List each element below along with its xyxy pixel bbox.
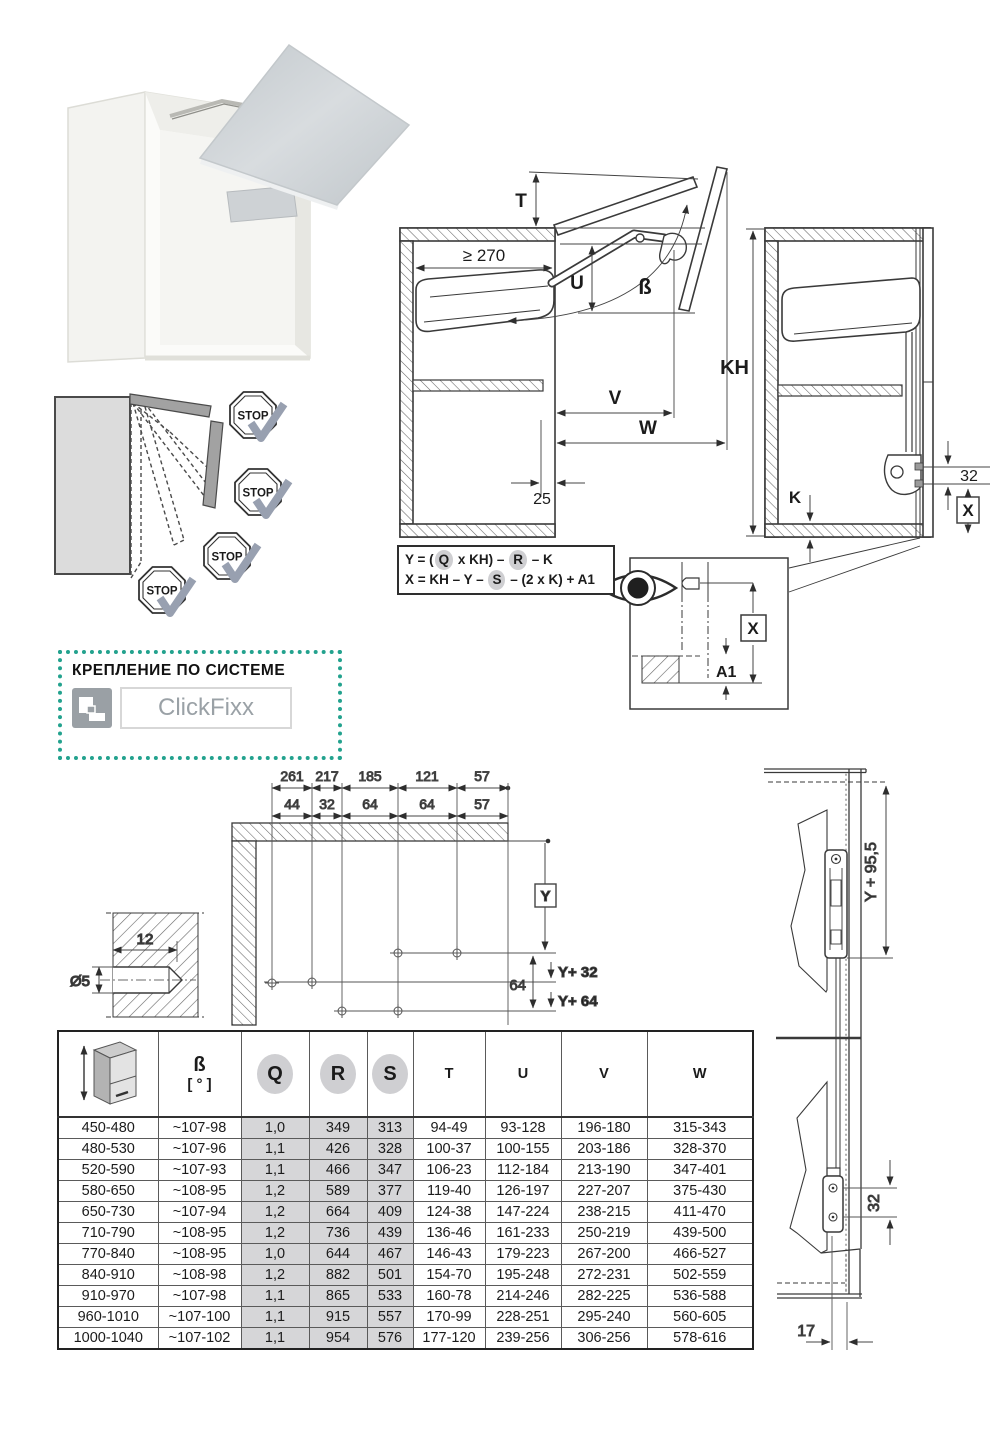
cell-kh: 840-910 [58,1265,158,1286]
cell-t: 177-120 [413,1328,485,1350]
cell-kh: 580-650 [58,1181,158,1202]
cell-q: 1,2 [241,1265,309,1286]
formula-x: X = KH – Y – S – (2 x K) + A1 [405,570,607,590]
cell-t: 119-40 [413,1181,485,1202]
cell-r: 349 [309,1117,367,1139]
cell-beta: ~107-102 [158,1328,241,1350]
cell-r: 466 [309,1160,367,1181]
cell-beta: ~108-95 [158,1181,241,1202]
cell-v: 306-256 [561,1328,647,1350]
cell-kh: 770-840 [58,1244,158,1265]
dim-label-dia5: Ø5 [70,973,90,990]
mounting-system-box: КРЕПЛЕНИЕ ПО СИСТЕМЕ ClickFixx [58,650,342,760]
cell-u: 239-256 [485,1328,561,1350]
header-s: S [367,1031,413,1117]
opening-stages-diagram: STOP STOP STOP STOP [45,385,335,645]
shelf-section-hatch [642,656,679,683]
cell-u: 126-197 [485,1181,561,1202]
header-cabinet-height [58,1031,158,1117]
table-row: 910-970~107-981,1865533160-78214-246282-… [58,1286,753,1307]
dim-label-U: U [570,273,584,294]
header-q-label: Q [257,1054,293,1094]
table-row: 480-530~107-961,1426328100-37100-155203-… [58,1139,753,1160]
cell-kh: 450-480 [58,1117,158,1139]
stop-label: STOP [211,552,242,564]
dim-label-A1: A1 [716,664,737,681]
cell-beta: ~108-95 [158,1223,241,1244]
clickfixx-wordmark: ClickFixx [120,687,292,729]
table-row: 1000-1040~107-1021,1954576177-120239-256… [58,1328,753,1350]
closed-cabinet-section [765,228,933,592]
cell-v: 196-180 [561,1117,647,1139]
cell-w: 578-616 [647,1328,753,1350]
cell-w: 536-588 [647,1286,753,1307]
cell-q: 1,0 [241,1117,309,1139]
header-beta-symbol: ß [159,1054,241,1076]
cell-v: 267-200 [561,1244,647,1265]
door-panel-side [203,421,223,508]
dim-label-32: 32 [866,1194,883,1212]
cell-r: 954 [309,1328,367,1350]
table-header-row: ß [ ° ] Q R S T U V W [58,1031,753,1117]
cell-v: 282-225 [561,1286,647,1307]
door-break-outline [790,1082,827,1253]
cell-q: 1,2 [241,1202,309,1223]
dim-57: 57 [474,768,490,784]
catalog-page: STOP STOP STOP STOP КРЕПЛЕ [0,0,1000,1451]
table-row: 520-590~107-931,1466347106-23112-184213-… [58,1160,753,1181]
cell-q: 1,2 [241,1223,309,1244]
cell-beta: ~107-94 [158,1202,241,1223]
table-row: 710-790~108-951,2736439136-46161-233250-… [58,1223,753,1244]
cell-s: 439 [367,1223,413,1244]
cell-w: 328-370 [647,1139,753,1160]
cell-q: 1,2 [241,1181,309,1202]
cell-beta: ~107-98 [158,1117,241,1139]
cell-r: 664 [309,1202,367,1223]
header-beta: ß [ ° ] [158,1031,241,1117]
header-v: V [561,1031,647,1117]
formula-box: Y = (Q x KH) – R – K X = KH – Y – S – (2… [397,545,615,595]
door-positions [55,394,223,578]
cell-q: 1,1 [241,1328,309,1350]
dim-185: 185 [358,768,382,784]
panel-corner [232,786,550,1025]
dim-label-Y32: Y+ 32 [558,964,598,981]
dim-label-KH: KH [720,357,749,379]
table-row: 450-480~107-981,034931394-4993-128196-18… [58,1117,753,1139]
cell-u: 179-223 [485,1244,561,1265]
cell-beta: ~108-95 [158,1244,241,1265]
drilling-pattern-diagram: 261 217 185 121 57 44 32 64 64 57 Y Y+ 3… [55,753,610,1037]
formula-segment: R [509,550,527,570]
cell-t: 100-37 [413,1139,485,1160]
dim-label-X: X [962,501,974,520]
dim-label-32: 32 [960,468,978,485]
cell-q: 1,1 [241,1139,309,1160]
cell-r: 644 [309,1244,367,1265]
cell-r: 589 [309,1181,367,1202]
cell-w: 315-343 [647,1117,753,1139]
cell-s: 377 [367,1181,413,1202]
cell-v: 227-207 [561,1181,647,1202]
cell-s: 313 [367,1117,413,1139]
cell-kh: 650-730 [58,1202,158,1223]
dim-217: 217 [315,768,339,784]
formula-segment: – K [528,552,553,567]
cell-kh: 960-1010 [58,1307,158,1328]
dim-261: 261 [280,768,304,784]
cell-v: 250-219 [561,1223,647,1244]
dim-label-25: 25 [533,491,551,508]
dim-label-W: W [639,418,657,439]
cell-v: 238-215 [561,1202,647,1223]
header-w: W [647,1031,753,1117]
cell-beta: ~107-93 [158,1160,241,1181]
cell-u: 112-184 [485,1160,561,1181]
cell-kh: 520-590 [58,1160,158,1181]
cell-v: 213-190 [561,1160,647,1181]
cell-t: 94-49 [413,1117,485,1139]
open-cabinet-section [400,228,555,537]
dim-label-V: V [609,388,622,409]
dim-44: 44 [284,796,300,812]
stop-label: STOP [146,586,177,598]
header-r: R [309,1031,367,1117]
dim-label-Y64: Y+ 64 [558,993,598,1010]
table-row: 650-730~107-941,2664409124-38147-224238-… [58,1202,753,1223]
dimension-rows: 261 217 185 121 57 44 32 64 64 57 [272,768,508,816]
cell-s: 533 [367,1286,413,1307]
cell-w: 560-605 [647,1307,753,1328]
cell-t: 146-43 [413,1244,485,1265]
stop-label: STOP [242,488,273,500]
door-panel-top [130,394,211,417]
dim-64: 64 [362,796,378,812]
cell-s: 557 [367,1307,413,1328]
cell-q: 1,1 [241,1286,309,1307]
dim-64: 64 [419,796,435,812]
dim-label-Y: Y [540,888,550,905]
cell-u: 195-248 [485,1265,561,1286]
cell-q: 1,1 [241,1307,309,1328]
cell-w: 439-500 [647,1223,753,1244]
formula-segment: Q [435,550,454,570]
dim-label-beta: ß [638,274,651,299]
cell-kh: 480-530 [58,1139,158,1160]
dim-label-X: X [747,619,759,638]
cell-t: 170-99 [413,1307,485,1328]
cell-u: 228-251 [485,1307,561,1328]
cell-v: 295-240 [561,1307,647,1328]
table-row: 580-650~108-951,2589377119-40126-197227-… [58,1181,753,1202]
table-row: 770-840~108-951,0644467146-43179-223267-… [58,1244,753,1265]
formula-segment: Y = ( [405,552,434,567]
drill-hole-section-detail: 12 Ø5 [70,913,204,1017]
dim-label-64: 64 [509,977,526,994]
cell-w: 502-559 [647,1265,753,1286]
table-row: 960-1010~107-1001,1915557170-99228-25129… [58,1307,753,1328]
cell-t: 154-70 [413,1265,485,1286]
cell-s: 328 [367,1139,413,1160]
cabinet-icon [72,1034,144,1110]
hinge-bracket-icon [660,233,687,263]
cell-s: 501 [367,1265,413,1286]
dim-121: 121 [415,768,439,784]
dim-label-T: T [515,191,527,212]
cell-s: 576 [367,1328,413,1350]
cell-r: 865 [309,1286,367,1307]
formula-segment: x KH) – [454,552,508,567]
mounting-plate-icon [825,850,847,958]
cell-s: 409 [367,1202,413,1223]
stop-label: STOP [237,411,268,423]
cell-s: 467 [367,1244,413,1265]
cell-t: 136-46 [413,1223,485,1244]
header-q: Q [241,1031,309,1117]
formula-segment: X = KH – Y – [405,572,487,587]
cell-beta: ~108-98 [158,1265,241,1286]
cell-t: 124-38 [413,1202,485,1223]
formula-segment: – (2 x K) + A1 [506,572,594,587]
spec-table: ß [ ° ] Q R S T U V W 450-480~107-981,03… [57,1030,754,1350]
cell-r: 915 [309,1307,367,1328]
cell-v: 272-231 [561,1265,647,1286]
cell-q: 1,1 [241,1160,309,1181]
cell-kh: 910-970 [58,1286,158,1307]
header-beta-unit: [ ° ] [159,1076,241,1094]
side-mounting-diagram: Y + 95,5 32 17 [740,753,1000,1413]
cell-t: 106-23 [413,1160,485,1181]
dim-32: 32 [319,796,335,812]
main-dimension-diagram: T ≥ 270 U ß V W 25 [390,148,1000,720]
cell-kh: 710-790 [58,1223,158,1244]
cell-u: 214-246 [485,1286,561,1307]
cell-u: 100-155 [485,1139,561,1160]
cell-u: 147-224 [485,1202,561,1223]
cell-w: 375-430 [647,1181,753,1202]
product-photo [40,30,430,390]
cell-beta: ~107-98 [158,1286,241,1307]
door-break-outline [791,810,827,992]
cell-kh: 1000-1040 [58,1328,158,1350]
dim-label-17: 17 [797,1323,815,1340]
dim-57: 57 [474,796,490,812]
cell-beta: ~107-96 [158,1139,241,1160]
table-row: 840-910~108-981,2882501154-70195-248272-… [58,1265,753,1286]
cell-r: 426 [309,1139,367,1160]
header-s-label: S [372,1054,408,1094]
cell-w: 466-527 [647,1244,753,1265]
header-t: T [413,1031,485,1117]
dowel-pin-icon [682,578,699,589]
dim-label-12: 12 [137,931,154,948]
header-u: U [485,1031,561,1117]
clickfixx-logo-icon [72,688,112,728]
cell-q: 1,0 [241,1244,309,1265]
cell-w: 411-470 [647,1202,753,1223]
cell-t: 160-78 [413,1286,485,1307]
dim-label-min-width: ≥ 270 [463,246,505,265]
cell-s: 347 [367,1160,413,1181]
lift-mechanism-icon [782,278,920,341]
dim-label-Y955: Y + 95,5 [863,842,880,902]
vertical-dimensions: Y Y+ 32 64 Y+ 64 [509,843,598,1010]
cell-u: 93-128 [485,1117,561,1139]
cabinet-photo-illustration [68,45,409,362]
cell-r: 736 [309,1223,367,1244]
mounting-system-heading: КРЕПЛЕНИЕ ПО СИСТЕМЕ [72,662,328,680]
eye-detail-diagram: X A1 [600,558,788,709]
cell-u: 161-233 [485,1223,561,1244]
formula-y: Y = (Q x KH) – R – K [405,550,607,570]
cell-beta: ~107-100 [158,1307,241,1328]
formula-segment: S [488,570,505,590]
cell-v: 203-186 [561,1139,647,1160]
cell-w: 347-401 [647,1160,753,1181]
dim-label-K: K [789,488,802,507]
header-r-label: R [320,1054,356,1094]
cell-r: 882 [309,1265,367,1286]
